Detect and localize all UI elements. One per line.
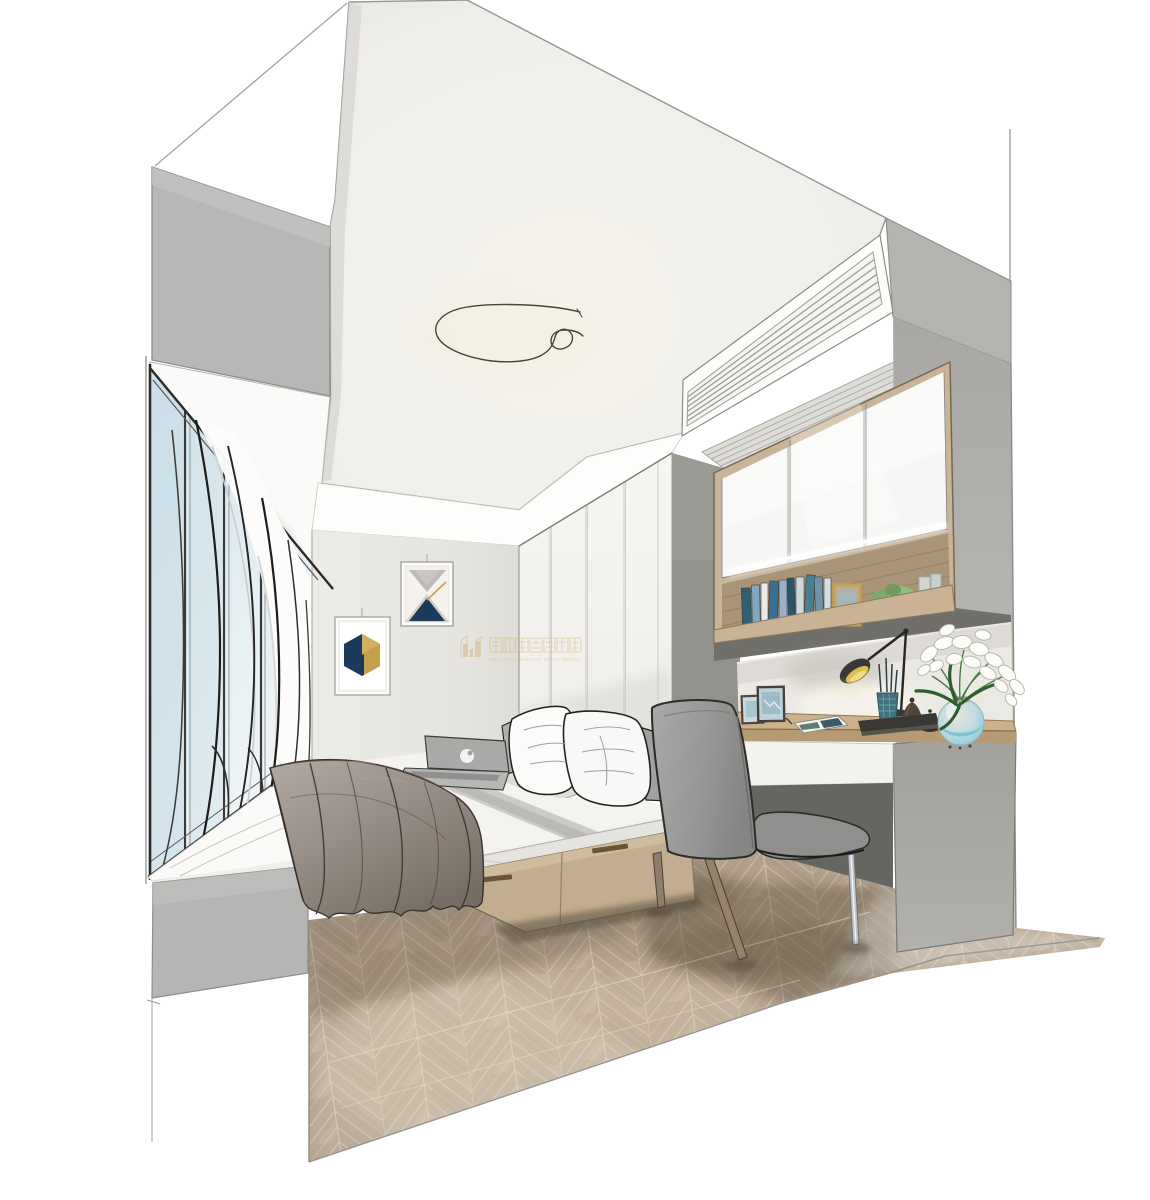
svg-text:MOKCHUAN BUILDING SPACE DESIGN: MOKCHUAN BUILDING SPACE DESIGN <box>489 657 581 662</box>
